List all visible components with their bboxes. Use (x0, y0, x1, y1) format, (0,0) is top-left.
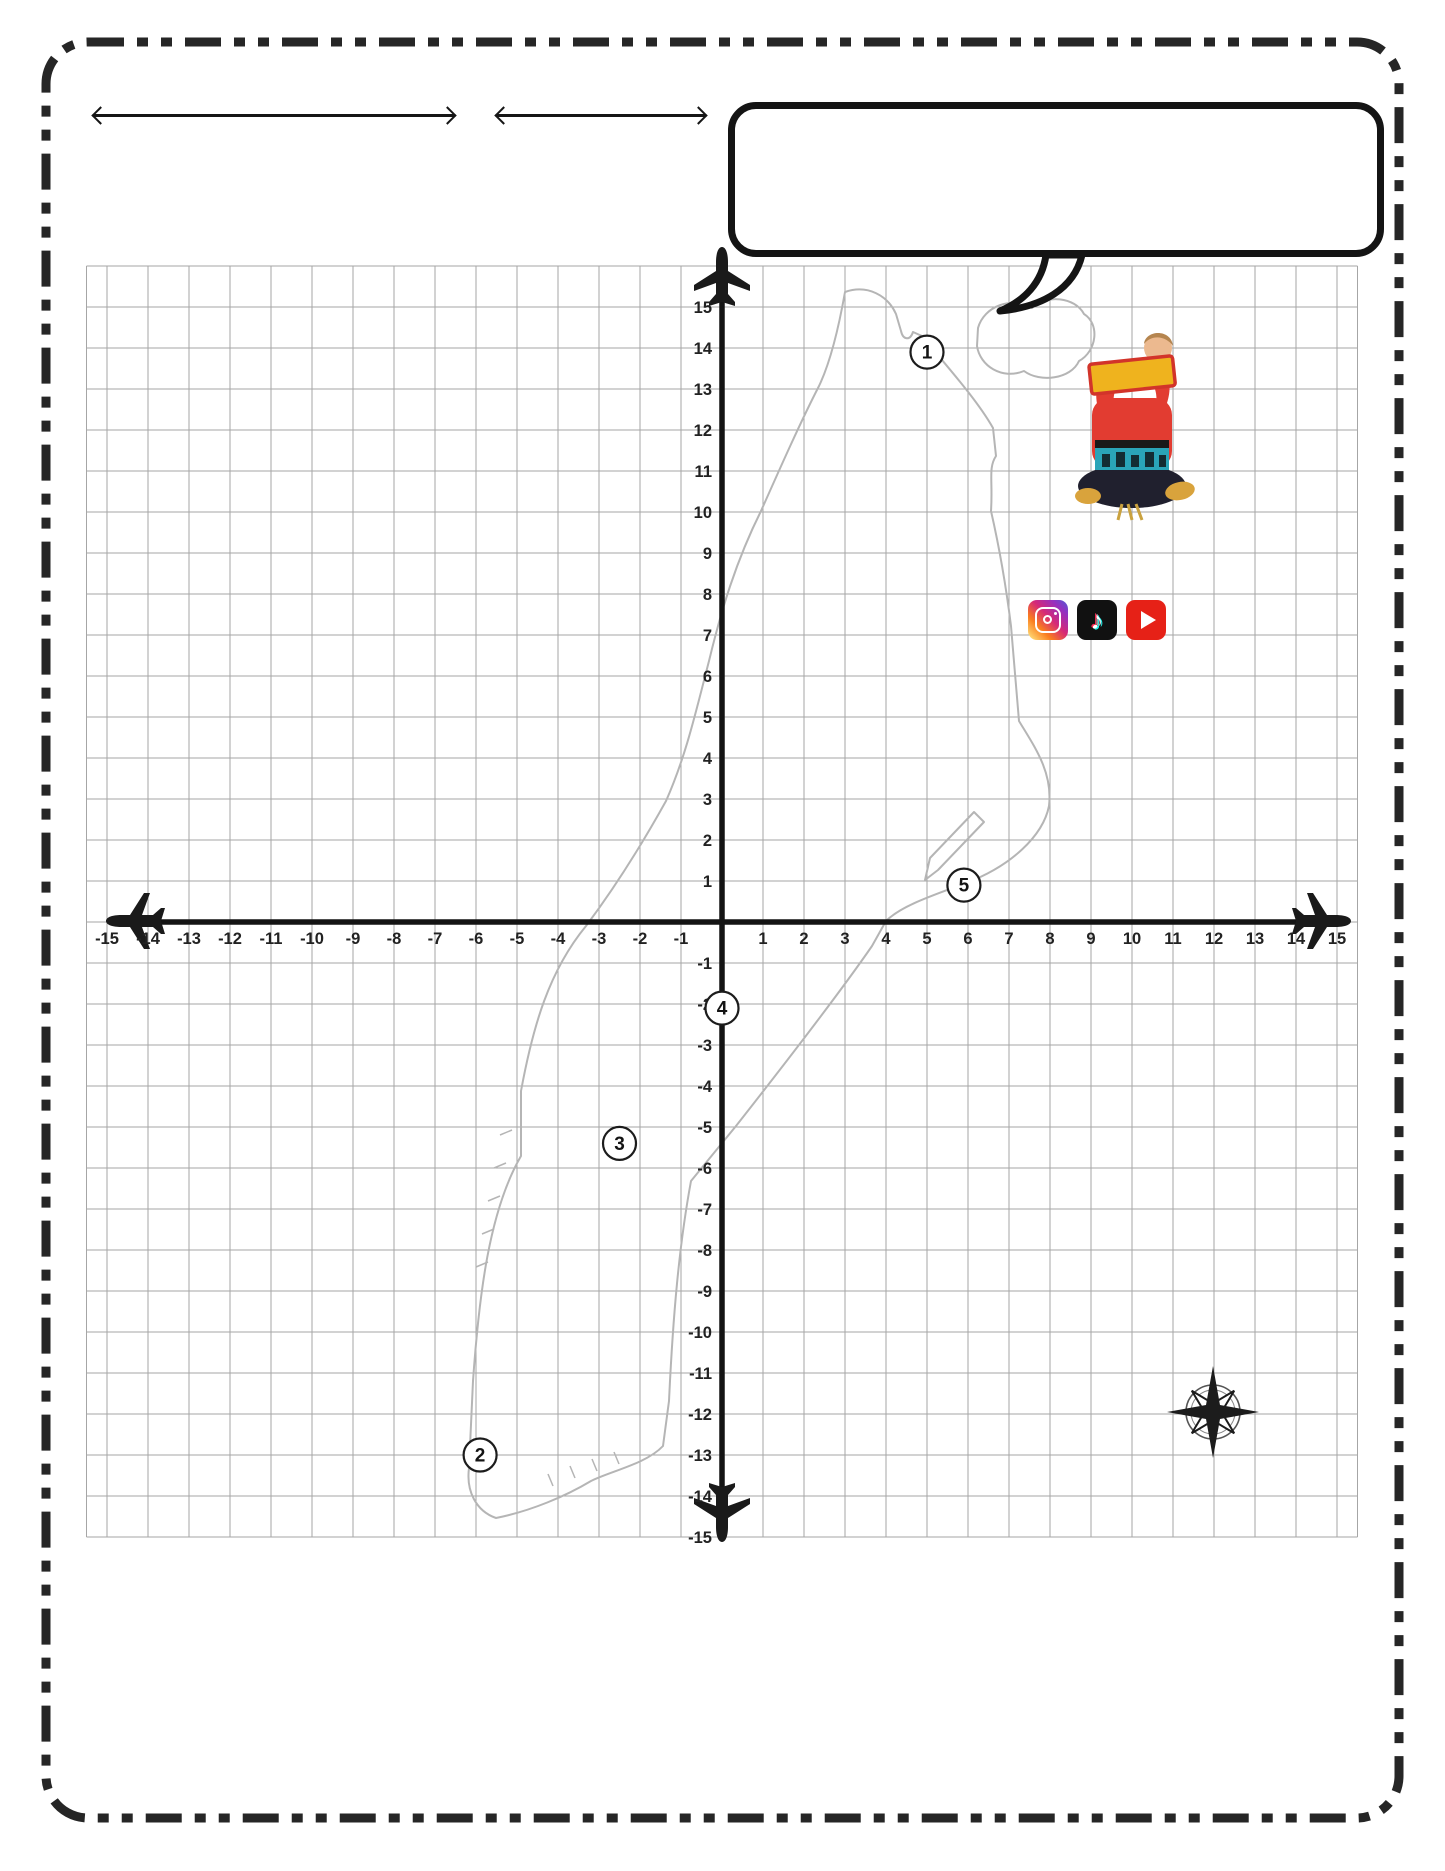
y-tick-label: 12 (694, 422, 712, 440)
x-tick-label: 7 (1004, 930, 1013, 948)
x-tick-label: 6 (963, 930, 972, 948)
speech-bubble-tail (994, 251, 1124, 329)
y-tick-label: -13 (688, 1447, 712, 1465)
y-tick-label: -8 (697, 1242, 712, 1260)
x-tick-label: 12 (1205, 930, 1223, 948)
name-field-line[interactable] (94, 114, 454, 117)
y-tick-label: -11 (689, 1365, 712, 1383)
x-tick-label: -15 (95, 930, 119, 948)
x-tick-label: -4 (551, 930, 566, 948)
y-tick-label: -14 (688, 1488, 713, 1506)
compass-rose (1167, 1366, 1259, 1458)
instruction-line (761, 169, 1367, 192)
x-tick-label: 1 (758, 930, 767, 948)
svg-text:3: 3 (614, 1134, 625, 1155)
miss-t-photo (1062, 328, 1202, 523)
svg-text:2: 2 (475, 1446, 486, 1467)
compass-star-main (1167, 1366, 1259, 1458)
sneaker (1075, 488, 1101, 504)
broadway-banner (1089, 356, 1176, 395)
y-tick-label: 10 (694, 504, 712, 522)
instructions-speech-bubble (728, 102, 1384, 257)
x-tick-label: -1 (674, 930, 689, 948)
x-tick-label: 15 (1328, 930, 1346, 948)
social-icons-row: ♪ (1028, 600, 1166, 640)
x-tick-label: 8 (1045, 930, 1054, 948)
y-tick-label: 11 (695, 463, 712, 481)
svg-text:5: 5 (959, 876, 970, 897)
instruction-line (761, 169, 1367, 192)
y-tick-label: 3 (703, 791, 712, 809)
x-tick-label: -9 (346, 930, 361, 948)
pier-marks (476, 1130, 619, 1486)
y-tick-label: 9 (703, 545, 712, 563)
instagram-icon[interactable] (1028, 600, 1068, 640)
y-tick-label: -5 (697, 1119, 712, 1137)
x-tick-label: 10 (1123, 930, 1141, 948)
x-tick-label: -3 (592, 930, 607, 948)
x-tick-label: 3 (840, 930, 849, 948)
y-tick-label: -1 (697, 955, 712, 973)
y-tick-label: 14 (694, 340, 713, 358)
y-tick-label: -12 (688, 1406, 712, 1424)
tiktok-icon[interactable]: ♪ (1077, 600, 1117, 640)
y-tick-label: -9 (697, 1283, 712, 1301)
y-tick-label: 13 (694, 381, 712, 399)
roosevelt-island-outline (925, 812, 984, 880)
svg-text:4: 4 (717, 999, 728, 1020)
x-tick-label: -12 (218, 930, 242, 948)
x-tick-label: 13 (1246, 930, 1264, 948)
x-tick-label: 2 (799, 930, 808, 948)
y-tick-label: 4 (703, 750, 713, 768)
y-tick-label: 6 (703, 668, 712, 686)
x-tick-label: -7 (428, 930, 443, 948)
y-tick-label: -7 (697, 1201, 712, 1219)
y-tick-label: -3 (697, 1037, 712, 1055)
x-tick-label: 5 (922, 930, 931, 948)
x-tick-label: -2 (633, 930, 648, 948)
y-tick-label: -4 (697, 1078, 712, 1096)
y-tick-label: 1 (703, 873, 712, 891)
youtube-icon[interactable] (1126, 600, 1166, 640)
x-tick-label: -5 (510, 930, 525, 948)
x-tick-label: 4 (881, 930, 891, 948)
x-tick-label: 11 (1164, 930, 1181, 948)
manhattan-outline (468, 289, 1094, 1518)
x-tick-label: -14 (136, 930, 161, 948)
y-tick-label: -15 (688, 1529, 712, 1547)
main-title-art (103, 192, 743, 310)
x-tick-label: 14 (1287, 930, 1306, 948)
instruction-line (761, 169, 1367, 192)
worksheet-page: -15-14-13-12-11-10-9-8-7-6-5-4-3-2-11234… (0, 0, 1445, 1871)
y-tick-label: 7 (703, 627, 712, 645)
date-field-line[interactable] (497, 114, 705, 117)
y-tick-label: 8 (703, 586, 712, 604)
x-tick-label: -10 (300, 930, 324, 948)
instruction-line (761, 169, 1367, 192)
x-tick-label: 9 (1086, 930, 1095, 948)
sweater-stripe (1095, 440, 1169, 448)
x-tick-label: -8 (387, 930, 402, 948)
y-tick-label: 5 (703, 709, 712, 727)
x-tick-label: -6 (469, 930, 484, 948)
svg-text:1: 1 (922, 343, 933, 364)
y-tick-label: -6 (697, 1160, 712, 1178)
y-tick-label: 2 (703, 832, 712, 850)
x-tick-label: -11 (260, 930, 283, 948)
x-tick-label: -13 (177, 930, 201, 948)
y-tick-label: -10 (688, 1324, 712, 1342)
